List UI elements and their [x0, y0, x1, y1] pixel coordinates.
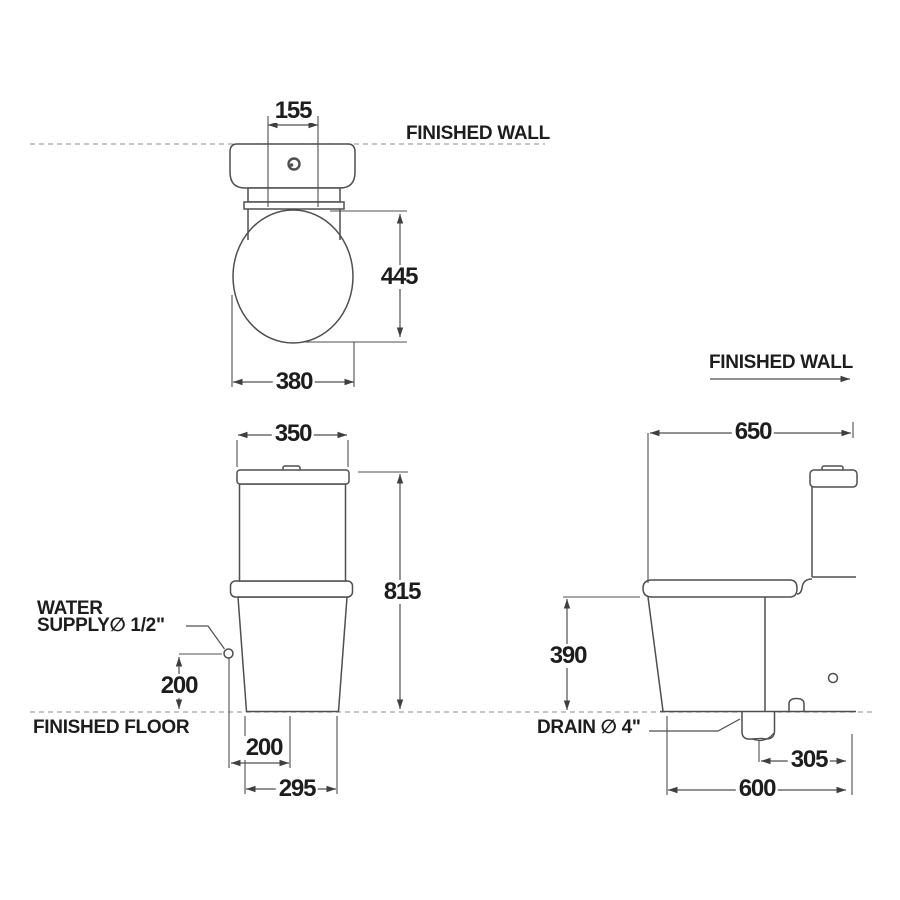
- arrow-815-up: [397, 474, 403, 484]
- side-view-fixing-bracket: [789, 699, 804, 713]
- front-view-bowl-outline: [238, 597, 347, 712]
- arrow-200h-left: [231, 760, 241, 766]
- side-view-fixing-hole: [829, 674, 838, 683]
- finished-wall-side-label: FINISHED WALL: [709, 353, 853, 372]
- arrow-445-up: [397, 214, 403, 224]
- water-supply-point: [224, 649, 233, 658]
- arrow-650-left: [650, 430, 660, 436]
- arrow-295-left: [246, 786, 256, 792]
- dim-650-label: 650: [732, 420, 774, 444]
- drain-leader: [649, 719, 740, 731]
- water-supply-label: WATERSUPPLY∅ 1/2": [37, 600, 165, 634]
- side-view-seat: [643, 580, 797, 597]
- water-supply-leader: [186, 626, 225, 649]
- side-view: [643, 466, 857, 741]
- dim-445-label: 445: [378, 265, 420, 289]
- arrow-380-right: [345, 379, 355, 385]
- arrow-305-left: [761, 758, 771, 764]
- arrow-350-left: [238, 432, 248, 438]
- arrow-305-right: [837, 758, 847, 764]
- arrow-600-right: [837, 787, 847, 793]
- arrow-390-up: [564, 599, 570, 609]
- side-view-tank-lid: [810, 470, 857, 487]
- flush-button-dot: [290, 163, 294, 167]
- dim-155-label: 155: [272, 99, 314, 123]
- arrow-390-down: [564, 701, 570, 711]
- dim-380-label: 380: [273, 370, 315, 394]
- arrow-380-left: [233, 379, 243, 385]
- arrow-445-down: [397, 328, 403, 338]
- front-view-seat-band: [231, 581, 353, 597]
- dim-350-label: 350: [272, 422, 314, 446]
- front-view-tank-body: [240, 484, 346, 581]
- drain-label: DRAIN ∅ 4": [537, 718, 641, 737]
- arrow-295-right: [327, 786, 337, 792]
- arrow-350-right: [338, 432, 348, 438]
- arrow-650-right: [842, 430, 852, 436]
- top-view-tank-neck: [248, 188, 340, 202]
- dim-200-vertical-label: 200: [158, 674, 200, 698]
- dim-305-label: 305: [788, 748, 830, 772]
- side-view-drain-pipe: [742, 712, 775, 739]
- dim-600-label: 600: [736, 777, 778, 801]
- side-view-seat-hinge: [797, 579, 812, 594]
- dim-390-label: 390: [547, 644, 589, 668]
- top-view-bowl-outline: [233, 210, 353, 343]
- arrow-815-down: [397, 700, 403, 710]
- top-view: [230, 144, 355, 343]
- technical-drawing-canvas: FINISHED WALL FINISHED WALL FINISHED FLO…: [0, 0, 900, 900]
- front-view-tank-lid: [237, 470, 349, 484]
- finished-floor-label: FINISHED FLOOR: [33, 718, 189, 737]
- dim-815-label: 815: [381, 580, 423, 604]
- arrow-200v-up: [176, 657, 182, 667]
- dim-200-horizontal-label: 200: [243, 736, 285, 760]
- finished-wall-top-label: FINISHED WALL: [406, 124, 550, 143]
- front-view: [224, 466, 353, 712]
- top-view-hinge-bar: [244, 202, 344, 209]
- dim-295-label: 295: [276, 777, 318, 801]
- side-view-bowl-front: [648, 597, 663, 711]
- arrow-200v-down: [176, 700, 182, 710]
- arrow-600-left: [668, 787, 678, 793]
- water-supply-label-line2: SUPPLY∅ 1/2": [37, 615, 165, 636]
- arrow-finished-wall: [841, 376, 851, 382]
